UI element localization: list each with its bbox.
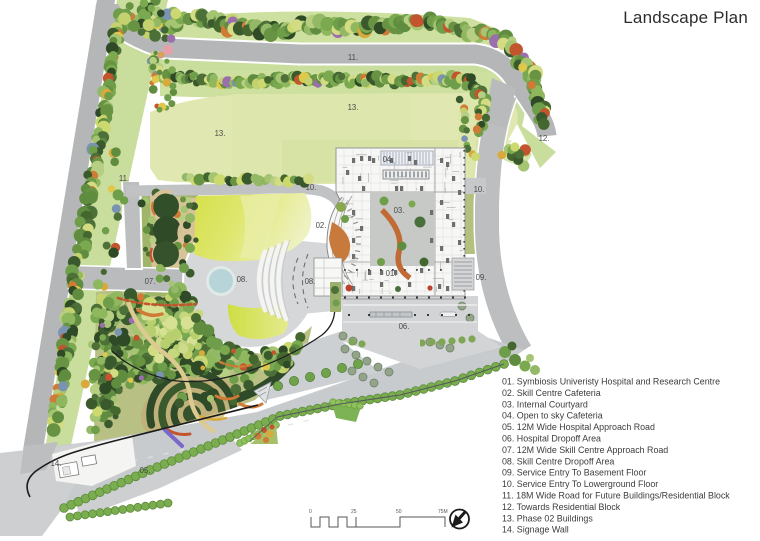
svg-text:01.: 01. [386, 269, 397, 278]
svg-text:02.: 02. [316, 221, 327, 230]
svg-text:06.: 06. [399, 322, 410, 331]
svg-text:13.: 13. [215, 129, 226, 138]
svg-text:Landscape Plan: Landscape Plan [623, 8, 748, 27]
svg-text:75M: 75M [438, 509, 448, 515]
svg-text:08.: 08. [305, 277, 316, 286]
svg-text:05.: 05. [140, 466, 151, 475]
svg-text:0: 0 [309, 509, 312, 515]
svg-text:06. Hospital Dropoff Area: 06. Hospital Dropoff Area [502, 434, 601, 444]
svg-text:01. Symbiosis Univeristy Hospi: 01. Symbiosis Univeristy Hospital and Re… [502, 377, 720, 387]
svg-text:13.: 13. [348, 103, 359, 112]
svg-text:11.: 11. [348, 53, 358, 62]
svg-text:08. Skill Centre Dropoff Area: 08. Skill Centre Dropoff Area [502, 456, 614, 466]
svg-text:13. Phase 02 Buildings: 13. Phase 02 Buildings [502, 513, 593, 523]
svg-text:03.: 03. [394, 206, 405, 215]
svg-text:08.: 08. [237, 275, 248, 284]
svg-text:25: 25 [351, 509, 357, 515]
svg-text:11. 18M Wide Road for Future B: 11. 18M Wide Road for Future Buildings/R… [502, 491, 730, 501]
svg-text:03. Internal Courtyard: 03. Internal Courtyard [502, 399, 588, 409]
svg-text:12. Towards Residential Block: 12. Towards Residential Block [502, 502, 621, 512]
svg-text:12.: 12. [539, 134, 550, 143]
svg-text:50: 50 [396, 509, 402, 515]
svg-text:04.: 04. [383, 155, 394, 164]
svg-text:10.: 10. [306, 183, 317, 192]
svg-text:04. Open to sky Cafeteria: 04. Open to sky Cafeteria [502, 411, 603, 421]
svg-text:09.: 09. [476, 273, 487, 282]
svg-text:14.: 14. [51, 459, 62, 468]
svg-text:10. Service Entry To Lowergrou: 10. Service Entry To Lowerground Floor [502, 479, 658, 489]
svg-text:02. Skill Centre Cafeteria: 02. Skill Centre Cafeteria [502, 388, 601, 398]
svg-text:07.: 07. [145, 277, 156, 286]
svg-text:10.: 10. [474, 185, 485, 194]
svg-text:05. 12M Wide Hospital Approach: 05. 12M Wide Hospital Approach Road [502, 422, 655, 432]
svg-text:11.: 11. [119, 174, 129, 183]
svg-text:14. Signage Wall: 14. Signage Wall [502, 525, 569, 535]
svg-text:09. Service Entry To Basement: 09. Service Entry To Basement Floor [502, 468, 646, 478]
svg-text:07. 12M Wide Skill Centre Appr: 07. 12M Wide Skill Centre Approach Road [502, 445, 668, 455]
